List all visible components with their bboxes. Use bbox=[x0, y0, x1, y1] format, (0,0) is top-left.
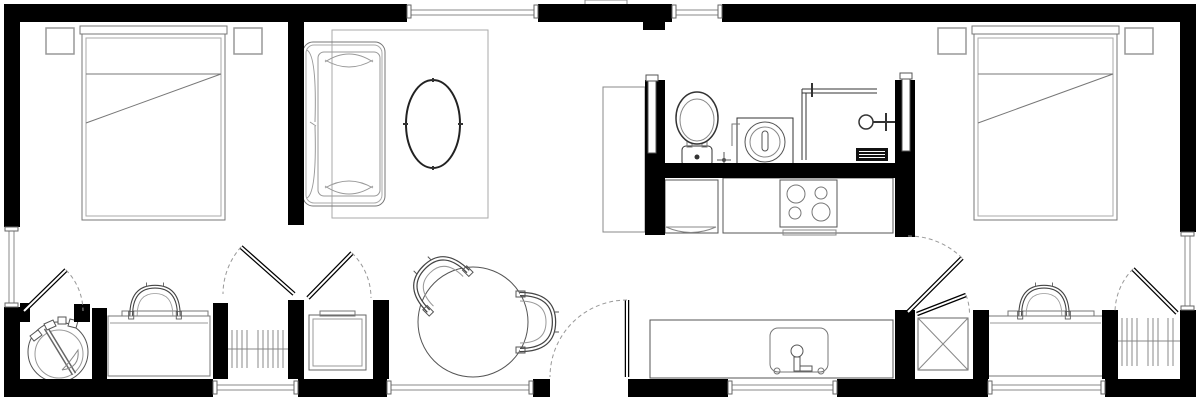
pocket-door bbox=[646, 75, 658, 153]
living-room-rug bbox=[332, 30, 488, 218]
floor-plan bbox=[0, 0, 1200, 401]
bed-left bbox=[80, 26, 227, 220]
door-swing bbox=[308, 253, 371, 298]
nightstand bbox=[938, 28, 966, 54]
bed-right bbox=[972, 26, 1119, 220]
desk-chair bbox=[1018, 282, 1071, 319]
door-swing bbox=[1115, 269, 1177, 313]
dining-chair bbox=[399, 242, 473, 316]
nightstand bbox=[234, 28, 262, 54]
window bbox=[1180, 232, 1196, 310]
pocket-door bbox=[900, 73, 912, 151]
closet-right-hanging-clothes bbox=[1118, 318, 1180, 366]
sink-counter bbox=[650, 320, 893, 378]
hall-cabinet bbox=[603, 87, 645, 232]
coffee-table bbox=[403, 78, 463, 170]
nightstand bbox=[46, 28, 74, 54]
dining-chair bbox=[516, 291, 559, 353]
interior-walls bbox=[14, 22, 1118, 379]
sofa bbox=[303, 42, 385, 206]
fridge bbox=[665, 180, 718, 233]
door-swing bbox=[223, 247, 294, 294]
entry-door-swing bbox=[550, 300, 627, 377]
cooktop bbox=[780, 180, 837, 235]
exterior-walls bbox=[4, 4, 1196, 397]
washer-dryer bbox=[732, 118, 793, 167]
round-lounge-chair bbox=[28, 317, 88, 382]
nightstand bbox=[1125, 28, 1153, 54]
desk-left bbox=[108, 311, 210, 376]
desk-chair bbox=[129, 282, 182, 319]
utility-closet-shelf bbox=[918, 318, 968, 370]
desk-right bbox=[988, 311, 1103, 376]
window bbox=[672, 4, 722, 22]
closet-left-hanging-clothes bbox=[228, 330, 288, 368]
floorplan-canvas bbox=[0, 0, 1200, 401]
dining-table bbox=[418, 267, 528, 377]
window bbox=[407, 4, 538, 22]
toilet bbox=[676, 92, 718, 166]
shower bbox=[802, 83, 895, 161]
window bbox=[4, 227, 20, 307]
window bbox=[988, 379, 1105, 397]
window bbox=[728, 379, 837, 397]
kitchen-counter bbox=[723, 178, 893, 233]
water-heater-appliance bbox=[309, 311, 366, 370]
window bbox=[387, 379, 533, 397]
window bbox=[213, 379, 298, 397]
